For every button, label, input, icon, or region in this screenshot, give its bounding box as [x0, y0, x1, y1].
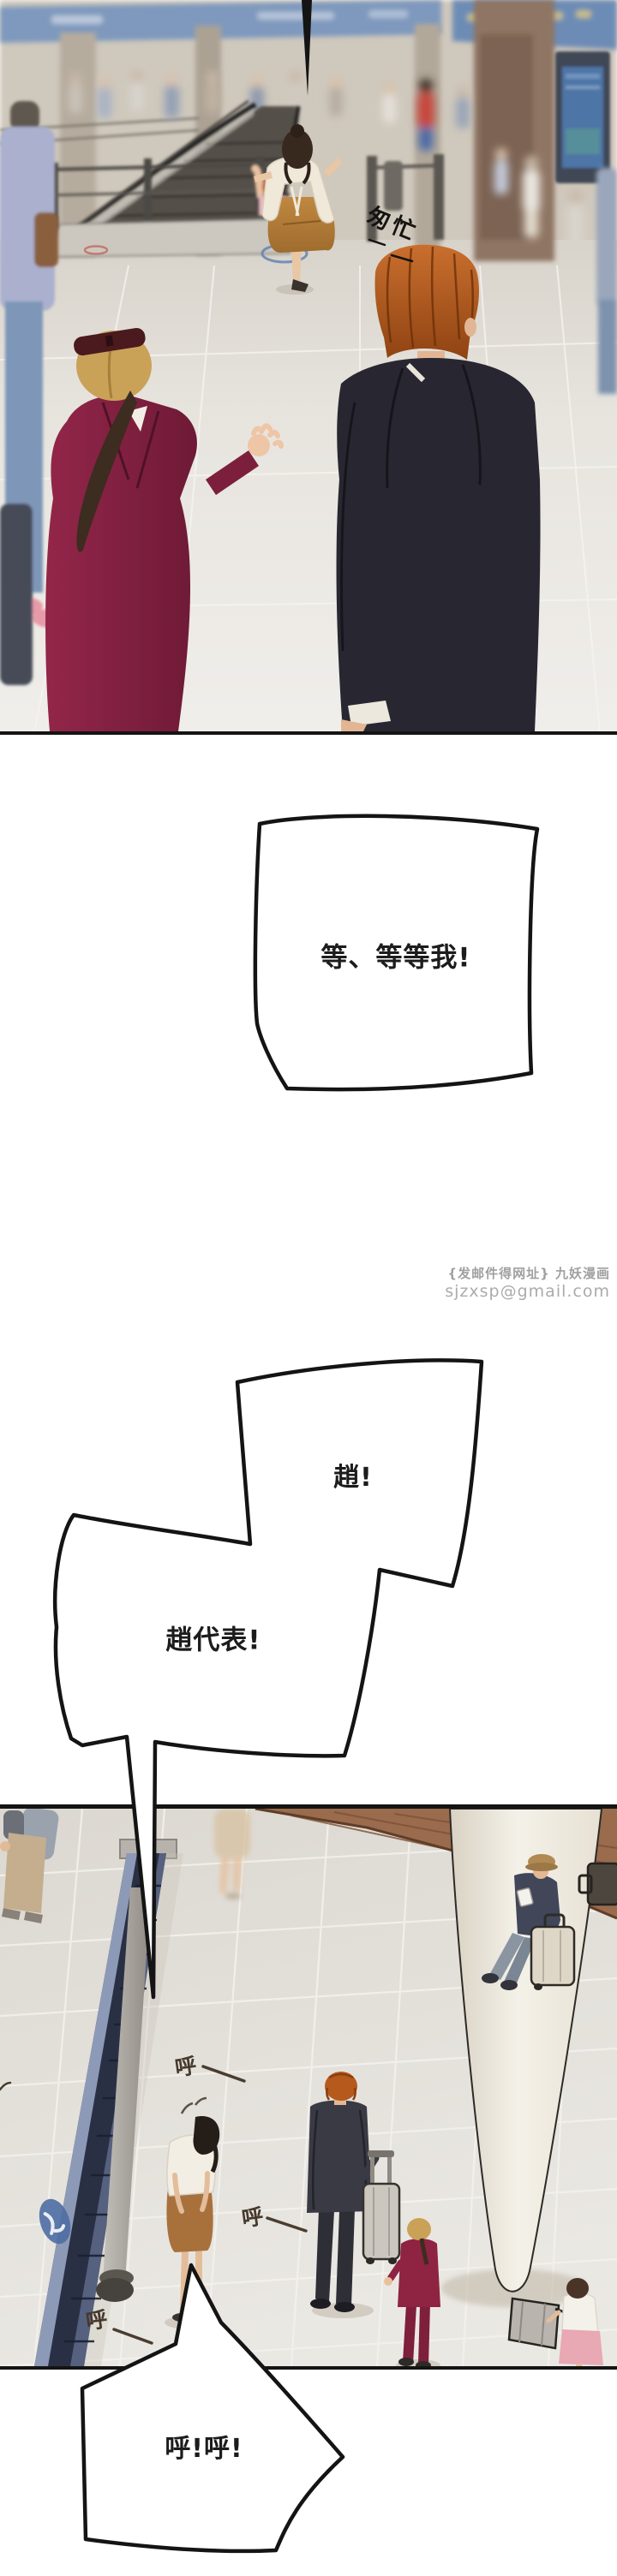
comic-page: 匆忙 等、等等我! {发邮件得网址} 九妖漫画 sjzxsp@gmail.com — [0, 0, 617, 2576]
bubble-text-zhao-daibiao: 趙代表! — [165, 1619, 261, 1657]
bubble-text-zhao: 趙! — [333, 1456, 373, 1494]
cream-suitcase — [531, 1915, 574, 1990]
speech-bubble-zhao-merged — [34, 1353, 497, 2004]
sfx-hurry-strokes — [364, 233, 433, 267]
speech-bubble-huff — [73, 2252, 356, 2561]
bubble-text-huff: 呼!呼! — [165, 2427, 243, 2465]
watermark-line1: {发邮件得网址} 九妖漫画 — [377, 1266, 610, 1282]
panel-station-hall: 匆忙 — [0, 0, 617, 735]
sfx-breath-1: 呼 — [173, 2048, 199, 2082]
watermark-line2: sjzxsp@gmail.com — [377, 1282, 610, 1303]
bubble-text-wait: 等、等等我! — [320, 936, 470, 975]
sfx-breath-3: 呼 — [84, 2302, 110, 2335]
bystander-right — [596, 168, 617, 394]
sfx-breath-2: 呼 — [240, 2199, 266, 2233]
station-hall-illustration — [0, 0, 617, 731]
info-kiosk — [555, 51, 610, 183]
watermark: {发邮件得网址} 九妖漫画 sjzxsp@gmail.com — [377, 1266, 610, 1303]
